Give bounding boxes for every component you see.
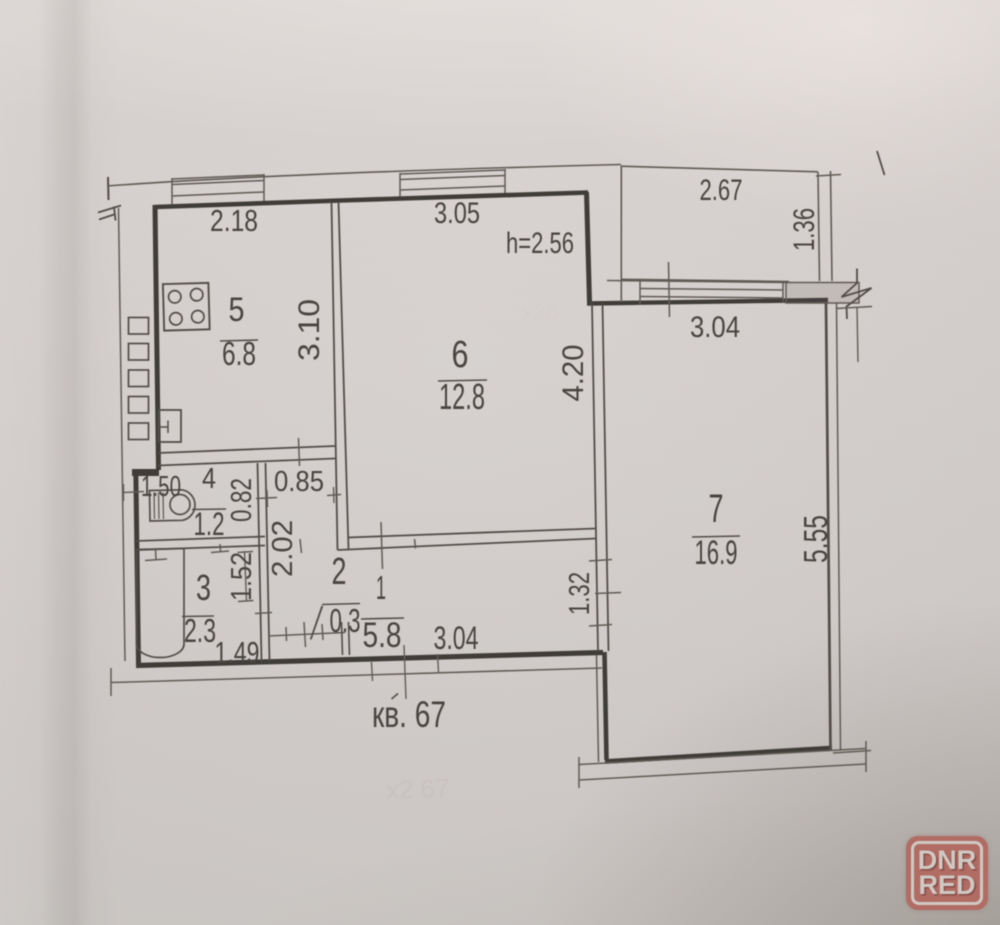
svg-text:1.52: 1.52: [226, 552, 258, 601]
svg-text:h=2.56: h=2.56: [506, 227, 574, 260]
svg-text:4.20: 4.20: [557, 345, 590, 402]
svg-text:3.04: 3.04: [434, 620, 479, 656]
svg-text:4: 4: [202, 463, 216, 495]
svg-text:2.18: 2.18: [210, 203, 258, 238]
svg-text:3.10: 3.10: [293, 299, 326, 361]
svg-text:5.8: 5.8: [363, 616, 402, 655]
svg-text:3.05: 3.05: [434, 197, 480, 230]
svg-text:16.9: 16.9: [695, 534, 738, 572]
svg-text:1: 1: [376, 569, 386, 606]
svg-text:7: 7: [709, 487, 724, 531]
svg-text:6: 6: [452, 334, 469, 376]
svg-text:12.8: 12.8: [439, 376, 485, 417]
svg-text:0.82: 0.82: [226, 478, 258, 522]
svg-text:5.55: 5.55: [797, 515, 834, 563]
svg-text:х2 67: х2 67: [385, 773, 450, 805]
svg-text:х2б: х2б: [522, 300, 558, 325]
svg-text:3.04: 3.04: [690, 311, 740, 344]
svg-text:5: 5: [229, 291, 245, 329]
svg-text:2: 2: [332, 551, 347, 593]
svg-text:1.50: 1.50: [141, 471, 181, 503]
svg-text:кв. 67: кв. 67: [372, 694, 446, 735]
svg-text:2.02: 2.02: [267, 520, 299, 577]
svg-text:3: 3: [196, 567, 211, 608]
svg-text:1.2: 1.2: [194, 506, 225, 542]
svg-text:2.67: 2.67: [700, 174, 743, 207]
svg-text:0.85: 0.85: [274, 466, 324, 498]
svg-text:1.36: 1.36: [788, 208, 821, 251]
svg-text:2.3: 2.3: [184, 612, 216, 649]
svg-text:6.8: 6.8: [222, 335, 256, 372]
svg-text:0.3: 0.3: [330, 602, 361, 639]
svg-text:1.49: 1.49: [215, 635, 260, 670]
svg-text:1.32: 1.32: [564, 572, 596, 615]
